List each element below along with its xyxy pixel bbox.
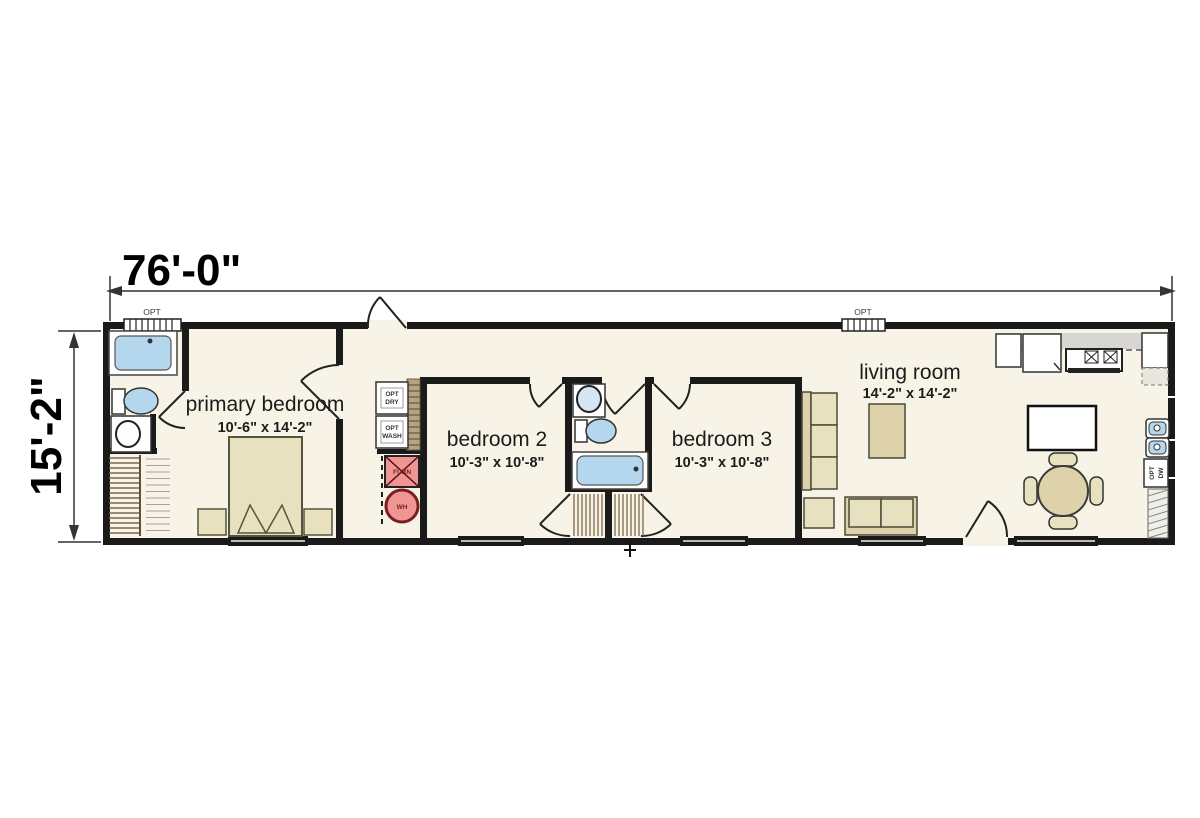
svg-text:DW: DW (1158, 467, 1165, 479)
arrowhead-left (106, 286, 122, 296)
range (1066, 349, 1122, 373)
opt-dryer-label: OPT (385, 391, 398, 398)
bedroom-3-size: 10'-3" x 10'-8" (675, 455, 770, 471)
ottoman (804, 498, 834, 528)
bathtub-bath2 (572, 452, 648, 489)
water-heater-label: WH (397, 504, 408, 511)
primary-bedroom-label: primary bedroom (186, 393, 345, 416)
opt-window-right-label: OPT (854, 307, 871, 317)
dining-chair-left (1024, 477, 1037, 505)
primary-bedroom-size: 10'-6" x 14'-2" (218, 420, 313, 436)
arrowhead-right (1160, 286, 1176, 296)
dining-chair-top (1049, 453, 1077, 466)
width-dimension-label: 76'-0" (122, 246, 241, 295)
sofa (802, 392, 837, 490)
svg-text:WASH: WASH (382, 433, 402, 440)
opt-window-right (842, 319, 885, 331)
svg-text:DRY: DRY (385, 399, 399, 406)
dimension-width (106, 276, 1176, 321)
dining-chair-bottom (1049, 516, 1077, 529)
kitchen-counter (1023, 334, 1061, 372)
bathtub-primary (109, 331, 177, 375)
opt-window-left-label: OPT (143, 307, 160, 317)
hatched-wall-strip (407, 379, 420, 450)
opt-washer (376, 416, 408, 448)
coffee-table (869, 404, 905, 458)
height-dimension-label: 15'-2" (22, 376, 71, 495)
arrowhead-top (69, 332, 79, 348)
bed (229, 437, 302, 536)
bedroom-2-size: 10'-3" x 10'-8" (450, 455, 545, 471)
kitchen-cabinet (996, 334, 1021, 367)
centerline-marker (624, 543, 636, 557)
opt-washer-label: OPT (385, 425, 398, 432)
opt-window-left (124, 319, 181, 331)
vanity-sink-bath2 (573, 384, 605, 417)
kitchen-counter-right (1148, 489, 1168, 538)
living-room-label: living room (859, 361, 961, 384)
living-room-size: 14'-2" x 14'-2" (863, 386, 958, 402)
vanity-sink-primary (111, 416, 151, 452)
kitchen-sink (1146, 419, 1169, 457)
opt-dishwasher-label: OPT (1149, 466, 1156, 479)
toilet-bath2 (575, 419, 616, 443)
front-door-opening (963, 536, 1008, 546)
floor-plan-canvas: 76'-0" 15'-2" (0, 0, 1200, 818)
bedroom-3-label: bedroom 3 (672, 428, 772, 451)
arrowhead-bottom (69, 525, 79, 541)
kitchen-island (1028, 406, 1096, 450)
dining-chair-right (1090, 477, 1103, 505)
opt-dryer (376, 382, 408, 414)
floor-plan-page: 76'-0" 15'-2" (0, 0, 1200, 818)
toilet-primary (112, 388, 158, 414)
dining-table (1038, 466, 1088, 516)
nightstand-left (198, 509, 226, 535)
loveseat (845, 497, 917, 535)
furnace-label: FURN (393, 469, 411, 476)
bedroom-2-label: bedroom 2 (447, 428, 547, 451)
refrigerator (1142, 333, 1168, 385)
nightstand-right (304, 509, 332, 535)
